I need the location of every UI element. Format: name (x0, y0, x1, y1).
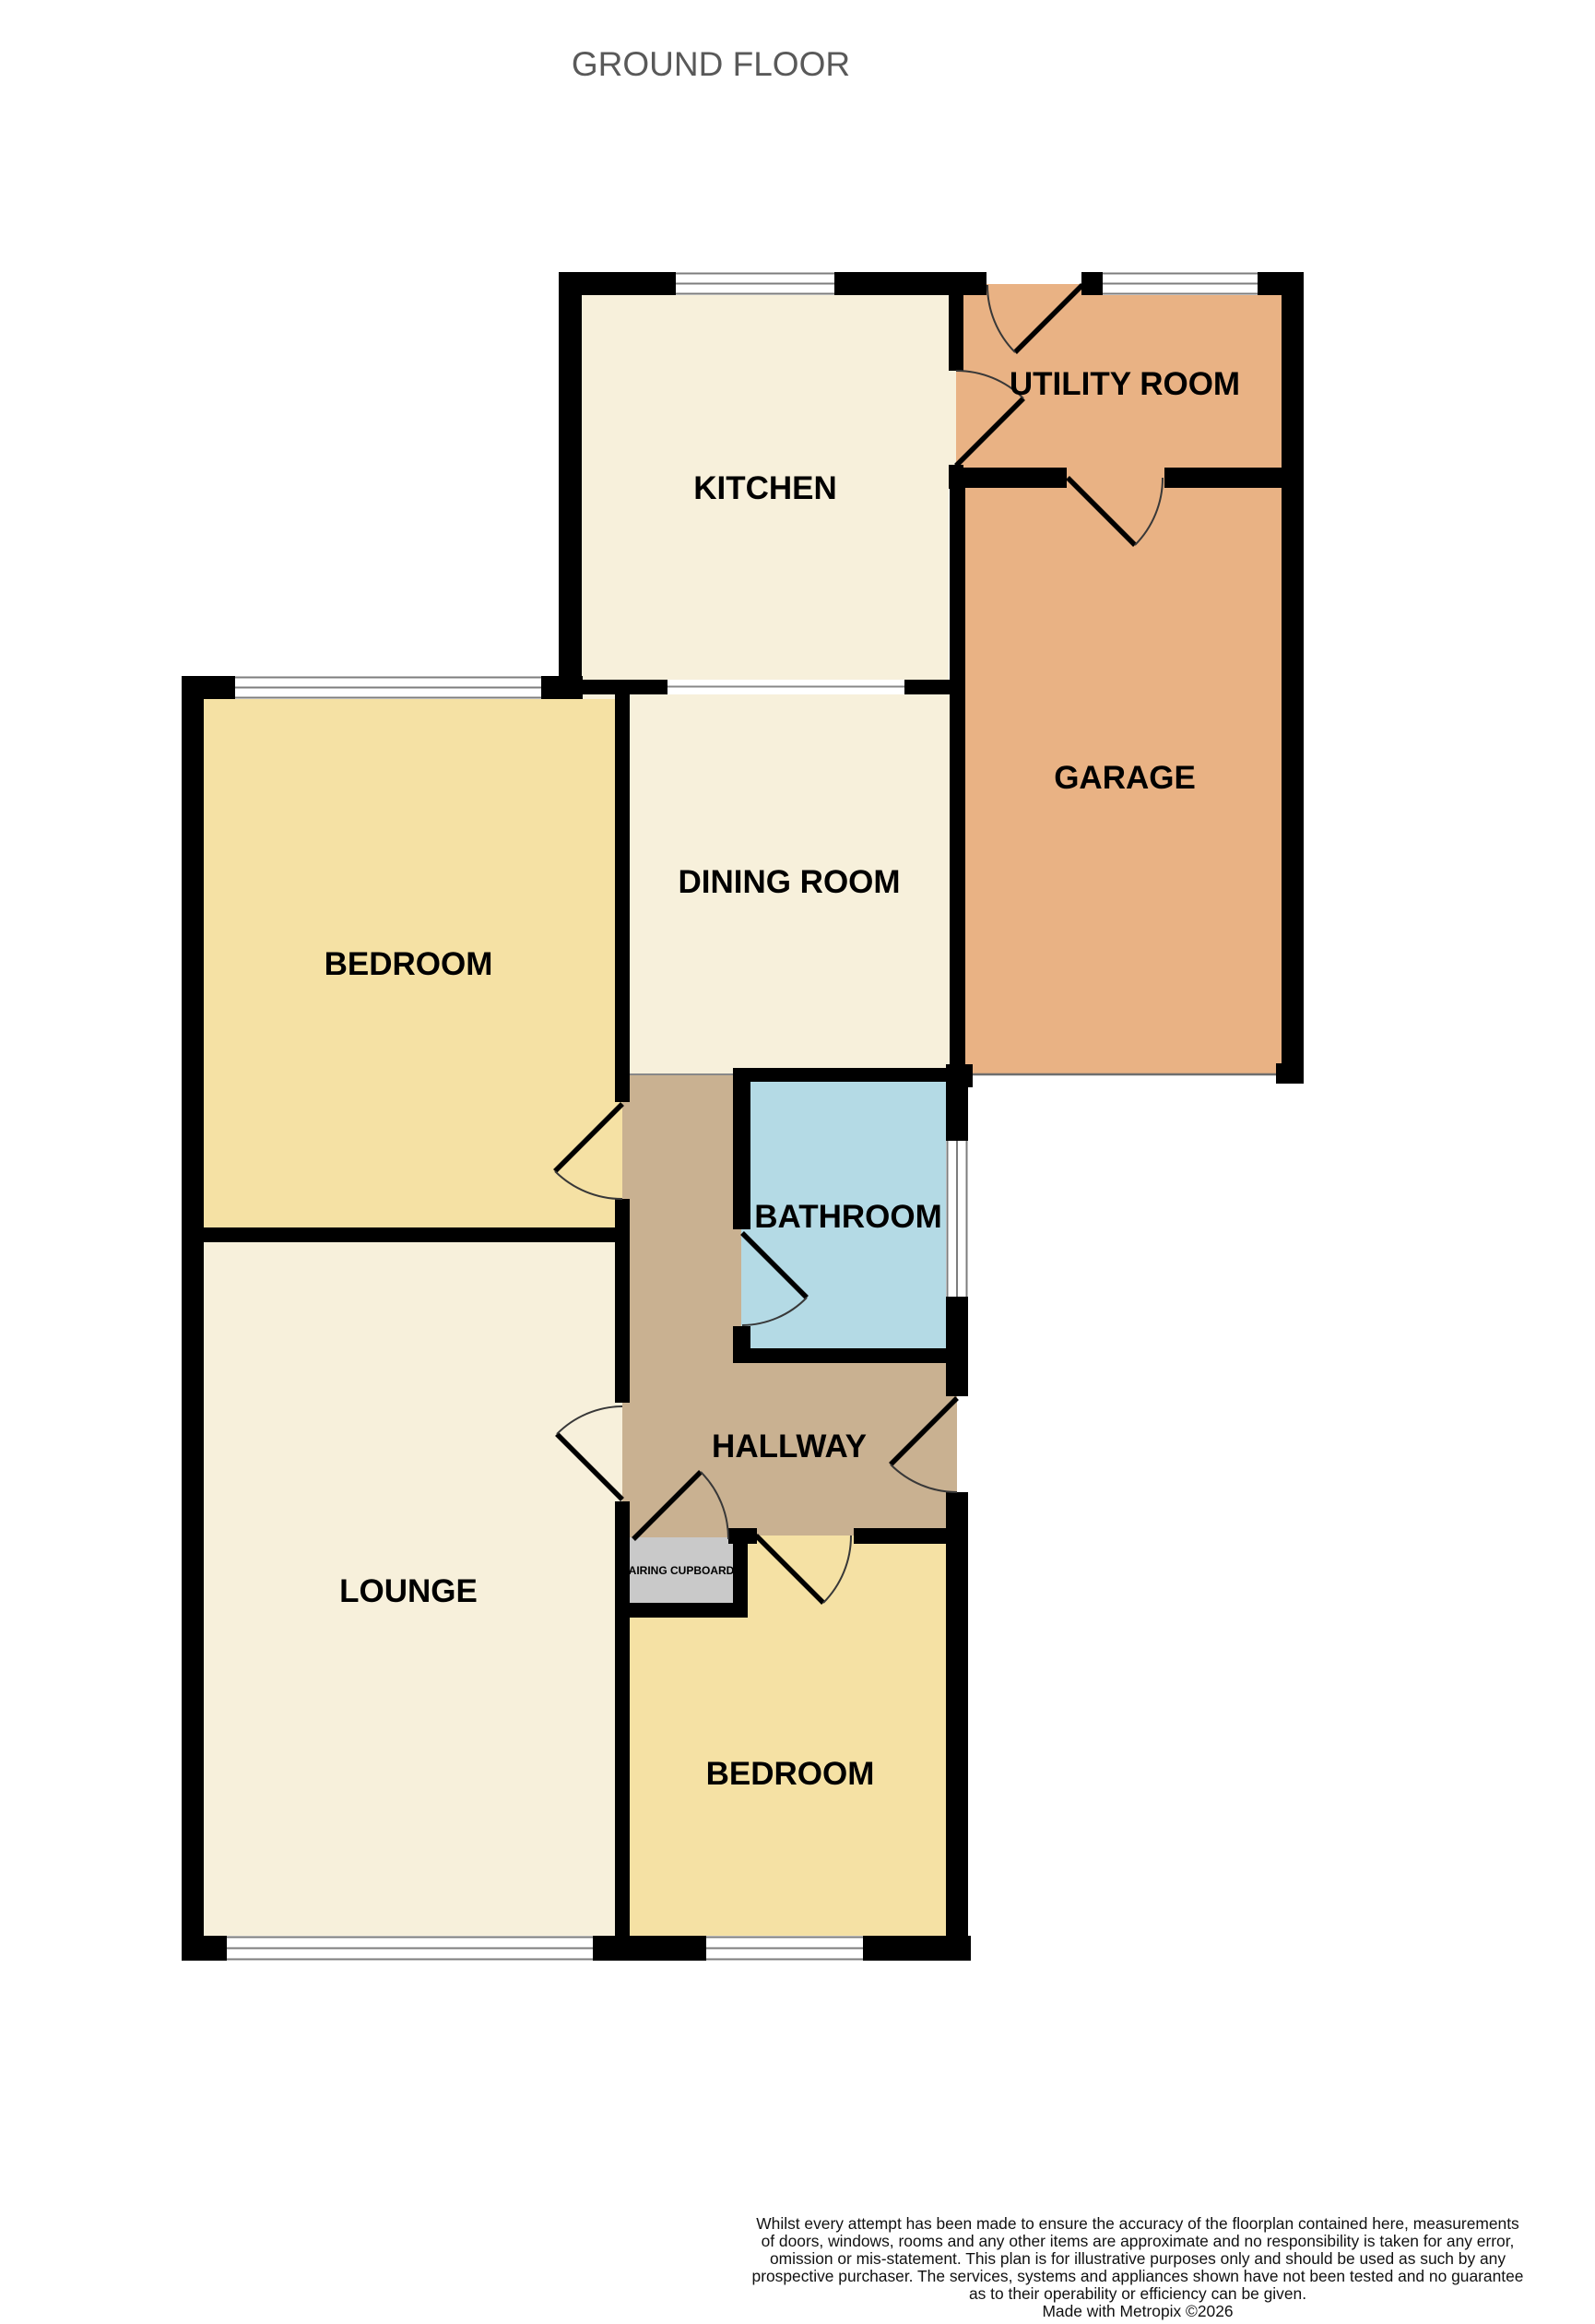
svg-text:KITCHEN: KITCHEN (693, 470, 837, 506)
svg-text:UTILITY ROOM: UTILITY ROOM (1010, 366, 1240, 402)
svg-text:GARAGE: GARAGE (1054, 760, 1196, 796)
svg-text:AIRING CUPBOARD: AIRING CUPBOARD (629, 1564, 735, 1577)
svg-text:as to their operability or eff: as to their operability or efficiency ca… (969, 2284, 1306, 2303)
svg-text:GROUND FLOOR: GROUND FLOOR (572, 45, 850, 83)
svg-text:omission or mis-statement. Thi: omission or mis-statement. This plan is … (770, 2249, 1506, 2268)
svg-text:DINING ROOM: DINING ROOM (678, 864, 900, 900)
svg-text:BEDROOM: BEDROOM (706, 1756, 875, 1792)
svg-text:of doors, windows, rooms and a: of doors, windows, rooms and any other i… (762, 2232, 1515, 2250)
svg-text:BATHROOM: BATHROOM (754, 1199, 942, 1235)
svg-text:prospective purchaser. The ser: prospective purchaser. The services, sys… (752, 2267, 1524, 2285)
svg-text:LOUNGE: LOUNGE (339, 1573, 478, 1609)
svg-text:HALLWAY: HALLWAY (712, 1429, 867, 1464)
svg-text:Whilst every attempt has been: Whilst every attempt has been made to en… (756, 2214, 1519, 2233)
svg-text:Made with Metropix ©2026: Made with Metropix ©2026 (1042, 2302, 1233, 2320)
svg-text:BEDROOM: BEDROOM (325, 946, 493, 982)
